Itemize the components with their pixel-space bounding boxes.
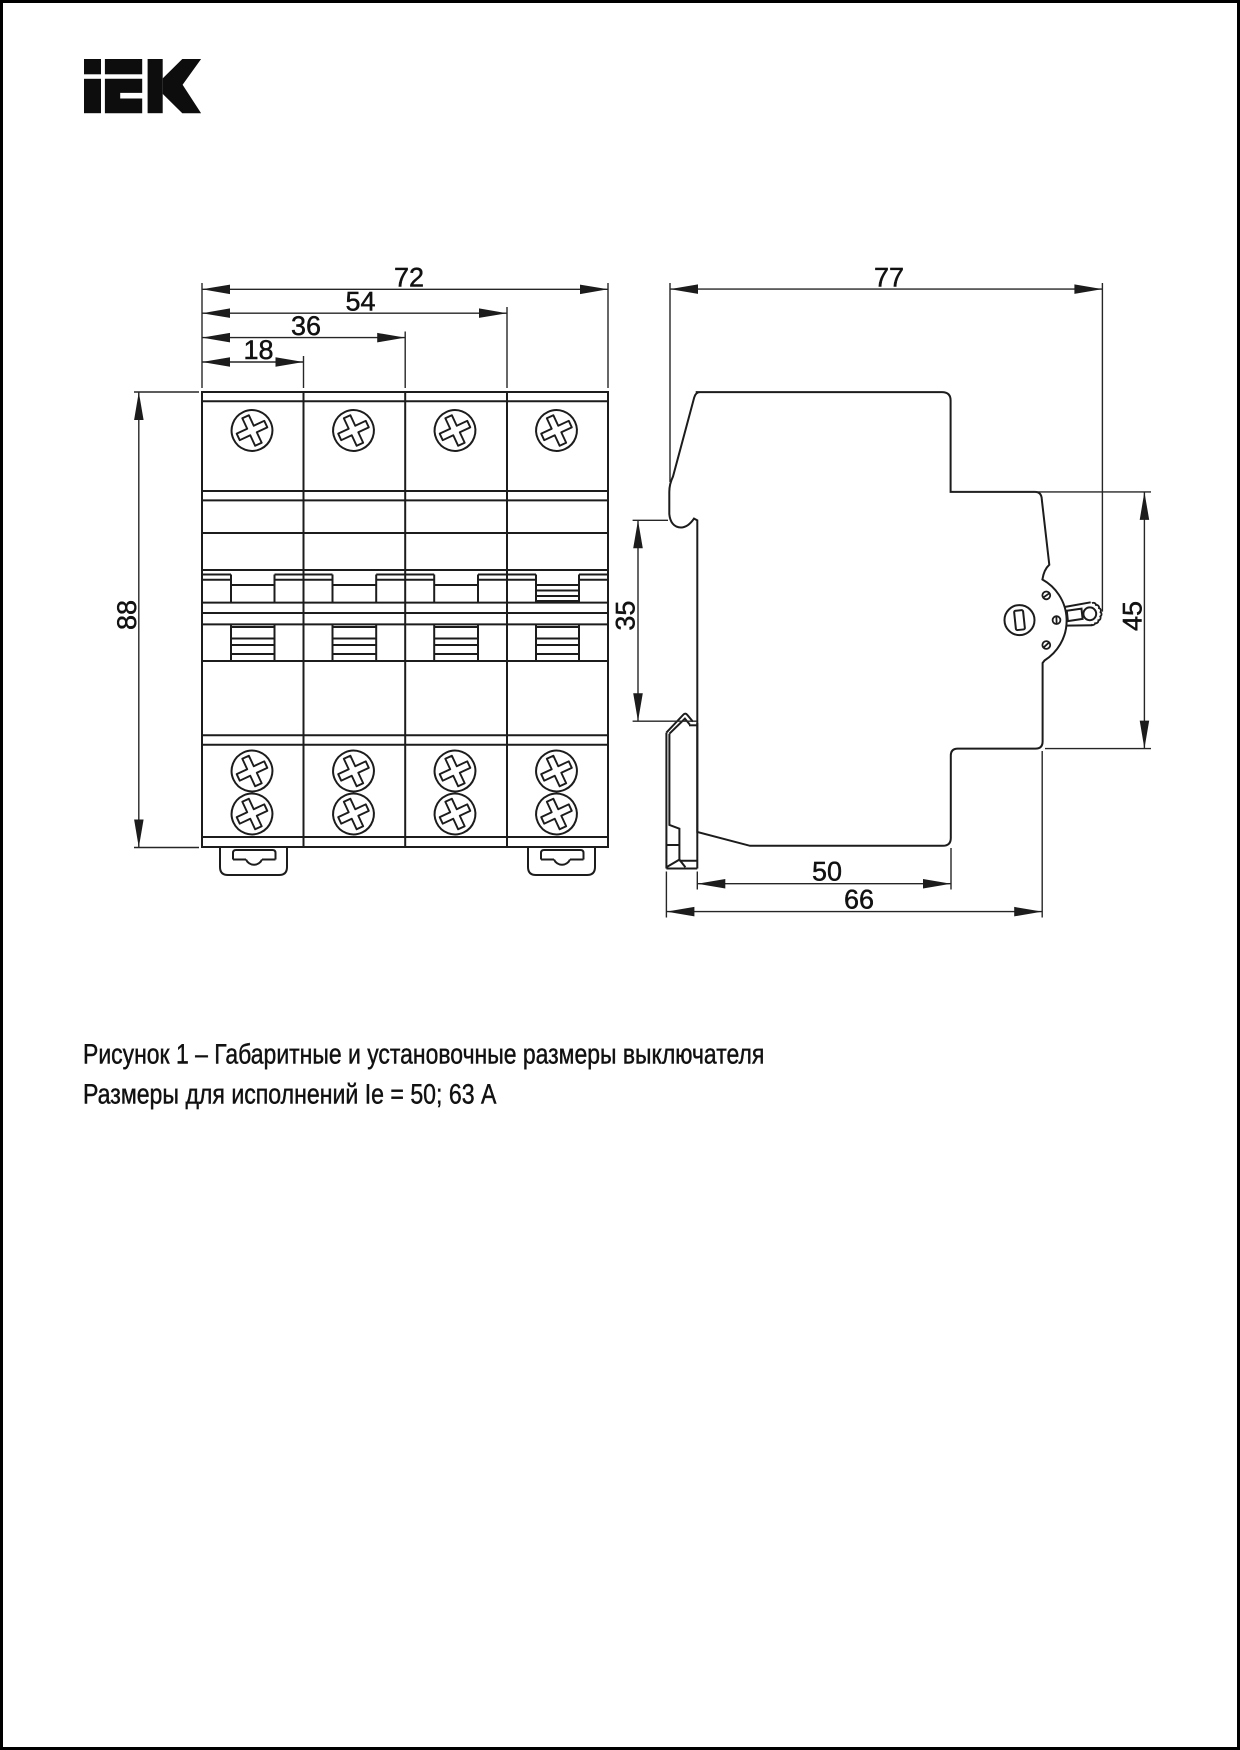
- svg-text:88: 88: [112, 600, 142, 630]
- svg-text:45: 45: [1118, 601, 1148, 631]
- svg-text:36: 36: [291, 311, 321, 341]
- svg-text:50: 50: [812, 857, 842, 887]
- svg-text:77: 77: [874, 262, 904, 292]
- svg-text:72: 72: [394, 263, 424, 293]
- svg-text:Рисунок 1 – Габаритные и устан: Рисунок 1 – Габаритные и установочные ра…: [83, 1038, 764, 1069]
- svg-text:54: 54: [345, 287, 375, 317]
- svg-text:Размеры для исполнений Ie = 50: Размеры для исполнений Ie = 50; 63 А: [83, 1078, 497, 1109]
- svg-text:66: 66: [844, 885, 874, 915]
- svg-text:18: 18: [243, 335, 273, 365]
- svg-text:35: 35: [611, 601, 641, 631]
